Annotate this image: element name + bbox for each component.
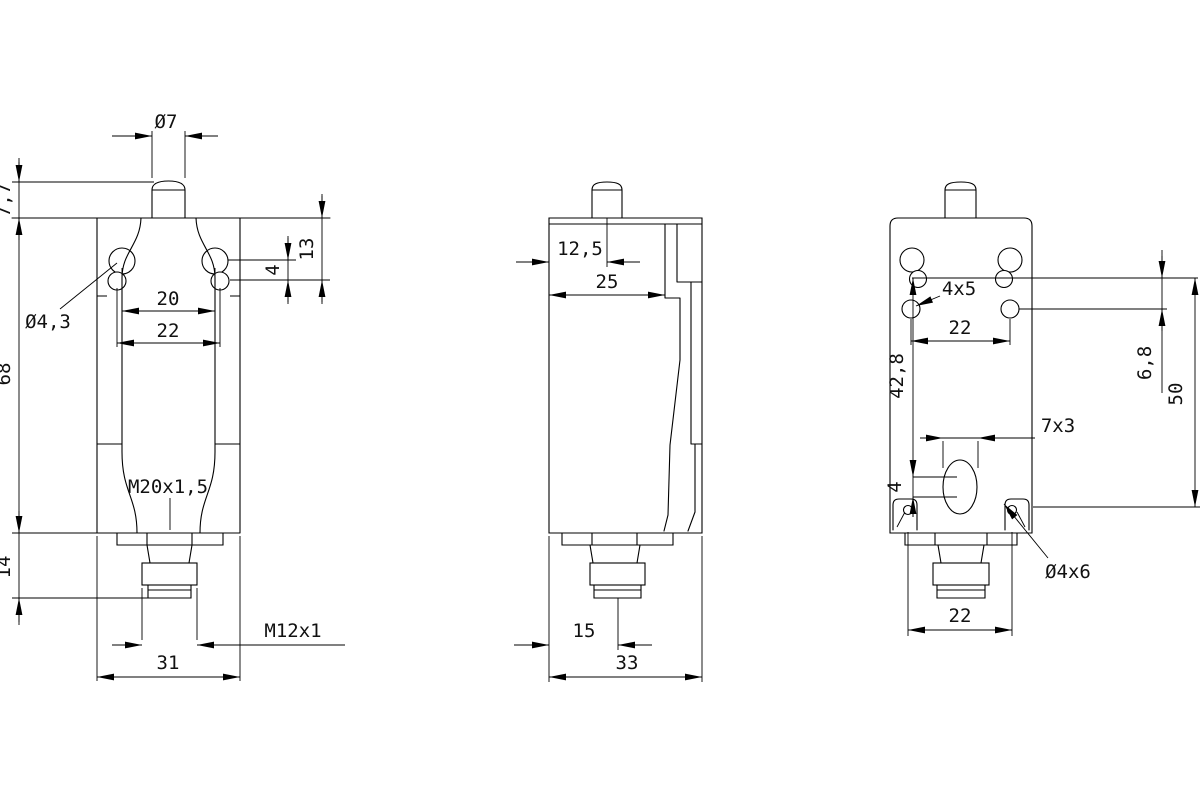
view-rear: 42,8 4 22 4x5 7x3 Ø4x6 (884, 182, 1200, 636)
dim-plunger-offset: 12,5 (516, 218, 640, 267)
front-flange (117, 533, 223, 545)
dim-label: 12,5 (557, 238, 603, 260)
front-gland (147, 545, 192, 563)
dim-slot-pitch: 20 22 (117, 268, 220, 347)
rear-gland (938, 545, 984, 563)
dim-connector-thread: M12x1 (112, 588, 345, 645)
dim-label: 7,7 (0, 183, 15, 217)
dim-slot-position: 13 4 (228, 194, 330, 304)
rear-plunger (945, 182, 976, 218)
side-connector-barrel (590, 563, 645, 585)
dim-label: 20 (157, 288, 180, 310)
dim-label: 4 (262, 264, 284, 275)
rear-corner-notch-detail (897, 512, 905, 527)
dim-label: M12x1 (264, 620, 321, 642)
dim-label: 68 (0, 363, 15, 386)
dim-label: 14 (0, 556, 15, 579)
dim-label: 22 (949, 317, 972, 339)
side-plunger (592, 182, 622, 218)
rear-keyway-hole (902, 300, 920, 318)
dim-label: 42,8 (886, 353, 908, 399)
dim-label: Ø4,3 (25, 311, 71, 333)
dim-label: Ø7 (155, 111, 178, 133)
dim-left-chain: 7,7 68 14 (0, 158, 191, 625)
dim-bottom-hole-pitch: 22 (908, 532, 1012, 636)
dim-label: 22 (157, 320, 180, 342)
mount-slot-hole (108, 272, 126, 290)
rear-connector-barrel (933, 563, 989, 585)
dim-label: 15 (573, 620, 596, 642)
rear-flange (905, 533, 1017, 545)
dim-label: 25 (596, 271, 619, 293)
dim-body-width: 31 (97, 536, 240, 681)
front-connector-barrel (142, 563, 197, 585)
rear-connector-ring (937, 585, 985, 598)
side-body-outline (549, 218, 702, 533)
side-flange (562, 533, 673, 545)
technical-drawing-page: Ø7 7,7 68 14 13 4 (0, 0, 1200, 800)
rear-mount-slot-hole (998, 248, 1022, 272)
dim-hole-pitch: 22 (911, 317, 1010, 345)
dim-label: M20x1,5 (128, 476, 208, 498)
dim-label: 33 (616, 652, 639, 674)
plunger (152, 181, 185, 218)
dim-row-gap: 6,8 (1134, 250, 1162, 393)
dim-label: 4x5 (942, 278, 976, 300)
dim-plunger-diameter: Ø7 (112, 111, 218, 178)
dim-label: 31 (157, 652, 180, 674)
dim-overall-depth: 33 (549, 536, 702, 682)
dim-slot-hole-diameter: Ø4,3 (25, 263, 117, 333)
mount-slot-hole (211, 272, 229, 290)
dim-label: 7x3 (1041, 415, 1075, 437)
dim-label: Ø4x6 (1045, 561, 1091, 583)
dim-label: 50 (1165, 383, 1187, 406)
side-connector-ring (594, 585, 641, 598)
side-inner-profile (664, 224, 702, 531)
rear-corner-hole (904, 506, 913, 515)
dim-label: 22 (949, 605, 972, 627)
rear-lower-slot (943, 460, 977, 514)
dim-head-depth: 25 (549, 271, 665, 295)
front-detail-ticks (97, 296, 240, 444)
rear-corner-notch (1005, 499, 1029, 530)
dim-mount-span: 50 (1033, 278, 1200, 507)
dim-label: 4 (884, 481, 906, 492)
side-gland (590, 545, 640, 563)
rear-keyway-hole (1001, 300, 1019, 318)
limit-switch-drawing: Ø7 7,7 68 14 13 4 (0, 0, 1200, 800)
rear-mount-slot-hole (996, 271, 1013, 288)
dim-label: 6,8 (1134, 346, 1156, 380)
view-side: 12,5 25 15 33 (514, 182, 702, 682)
dim-lower-slot: 7x3 (920, 415, 1075, 468)
dim-label: 13 (296, 238, 318, 261)
view-front: Ø7 7,7 68 14 13 4 (0, 111, 345, 681)
rear-mount-slot-hole (910, 271, 927, 288)
front-connector-ring (148, 585, 191, 598)
dim-gland-thread: M20x1,5 (128, 476, 208, 530)
rear-mount-slot-hole (900, 248, 924, 272)
